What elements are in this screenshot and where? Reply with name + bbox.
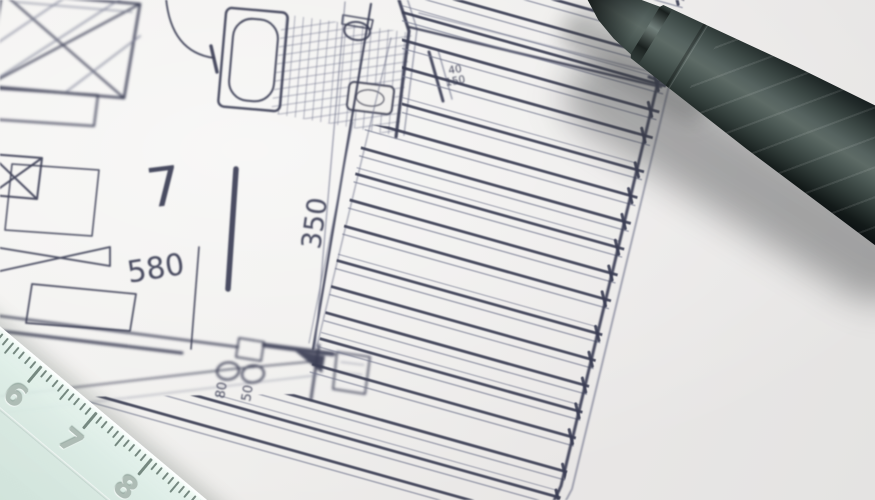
plan-line	[0, 0, 140, 92]
ruler-tick	[161, 472, 168, 480]
door-opening	[236, 338, 264, 361]
door-jamb	[211, 46, 217, 72]
tile-grid-line	[311, 6, 322, 140]
plan-line	[26, 284, 136, 331]
plan-line	[0, 0, 140, 98]
ruler-tick	[73, 398, 80, 406]
window-symbol	[0, 245, 110, 275]
ruler-tick	[57, 384, 64, 392]
plan-line	[0, 154, 42, 199]
ruler-tick	[79, 402, 86, 410]
ruler-tick	[150, 462, 157, 470]
ruler-tick	[29, 361, 36, 369]
ruler-tick	[134, 449, 141, 457]
room-number-label: 7	[143, 154, 185, 221]
ruler-tick	[123, 439, 130, 447]
ruler-tick	[106, 425, 113, 433]
tile-grid-line	[259, 6, 270, 140]
ruler-tick	[139, 453, 146, 461]
detail-80-label: 80	[213, 381, 231, 400]
door-swing-arc	[166, 0, 214, 58]
ruler-tick	[84, 407, 91, 415]
ruler-tick	[128, 444, 135, 452]
ruler-tick	[178, 486, 185, 494]
ruler-tick	[0, 333, 3, 341]
rafter-line	[0, 0, 655, 138]
ruler-tick	[156, 467, 163, 475]
rafter-line-thin	[0, 200, 590, 395]
interior-wall	[228, 169, 236, 289]
dimension-580-label: 580	[125, 247, 187, 291]
tile-grid-line	[276, 6, 287, 140]
plan-line	[191, 247, 199, 349]
skylight-hatch	[0, 0, 140, 126]
ruler-tick	[1, 338, 8, 346]
ruler-tick	[167, 476, 174, 484]
ruler-tick	[95, 416, 102, 424]
wall-line	[0, 315, 238, 347]
beam-size-bottom-label: 150	[444, 74, 466, 89]
rafter-line-thin	[0, 226, 583, 421]
photo-architectural-plan-scene: 7 580 350 40 150 80 50 6 7 8	[0, 0, 875, 500]
dimension-350-label: 350	[296, 196, 334, 251]
ruler-tick	[18, 351, 25, 359]
ruler-tick	[189, 495, 196, 500]
left-room-furniture	[0, 154, 136, 331]
detail-50-label: 50	[239, 384, 257, 403]
ruler-tick	[101, 421, 108, 429]
tile-grid-line	[266, 102, 416, 124]
ruler-tick	[68, 393, 75, 401]
ruler-tick	[40, 370, 47, 378]
ruler-tick	[46, 375, 53, 383]
ridge-tick	[675, 0, 678, 4]
rafter-line-thin	[0, 0, 663, 94]
bathtub-outline	[218, 7, 288, 111]
rafter-line-thin	[0, 0, 656, 120]
plan-line	[0, 88, 98, 126]
tile-grid-line	[266, 128, 416, 150]
ruler-tick	[51, 379, 58, 387]
rafter-line-thin	[0, 88, 616, 283]
ruler-tick	[183, 490, 190, 498]
ruler-tick	[12, 347, 19, 355]
ruler-tick	[112, 430, 119, 438]
bathtub-basin	[228, 17, 280, 103]
tile-grid-line	[266, 136, 416, 158]
ruler-tick	[24, 356, 31, 364]
